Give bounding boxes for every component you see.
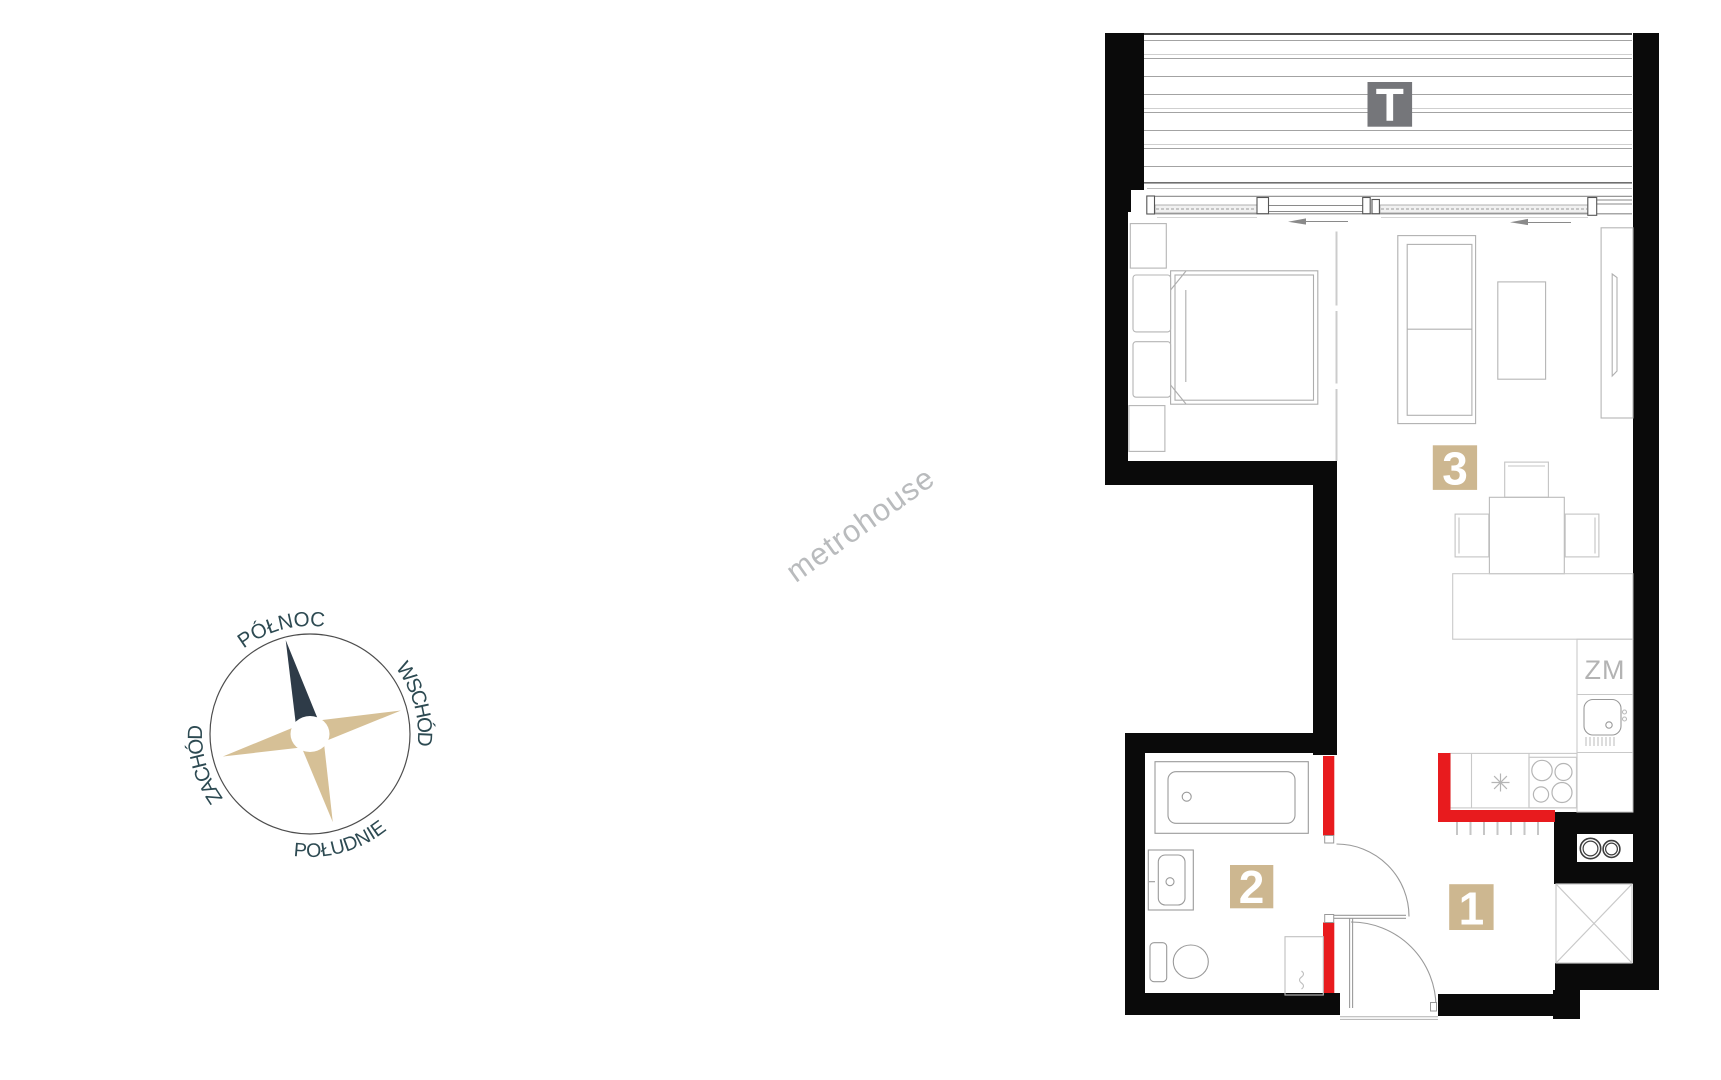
svg-text:1: 1 <box>1459 883 1485 935</box>
svg-text:metrohouse: metrohouse <box>779 460 941 589</box>
svg-text:2: 2 <box>1239 861 1265 913</box>
svg-text:3: 3 <box>1442 443 1468 495</box>
svg-text:T: T <box>1376 79 1404 131</box>
svg-text:ZM: ZM <box>1585 655 1626 685</box>
